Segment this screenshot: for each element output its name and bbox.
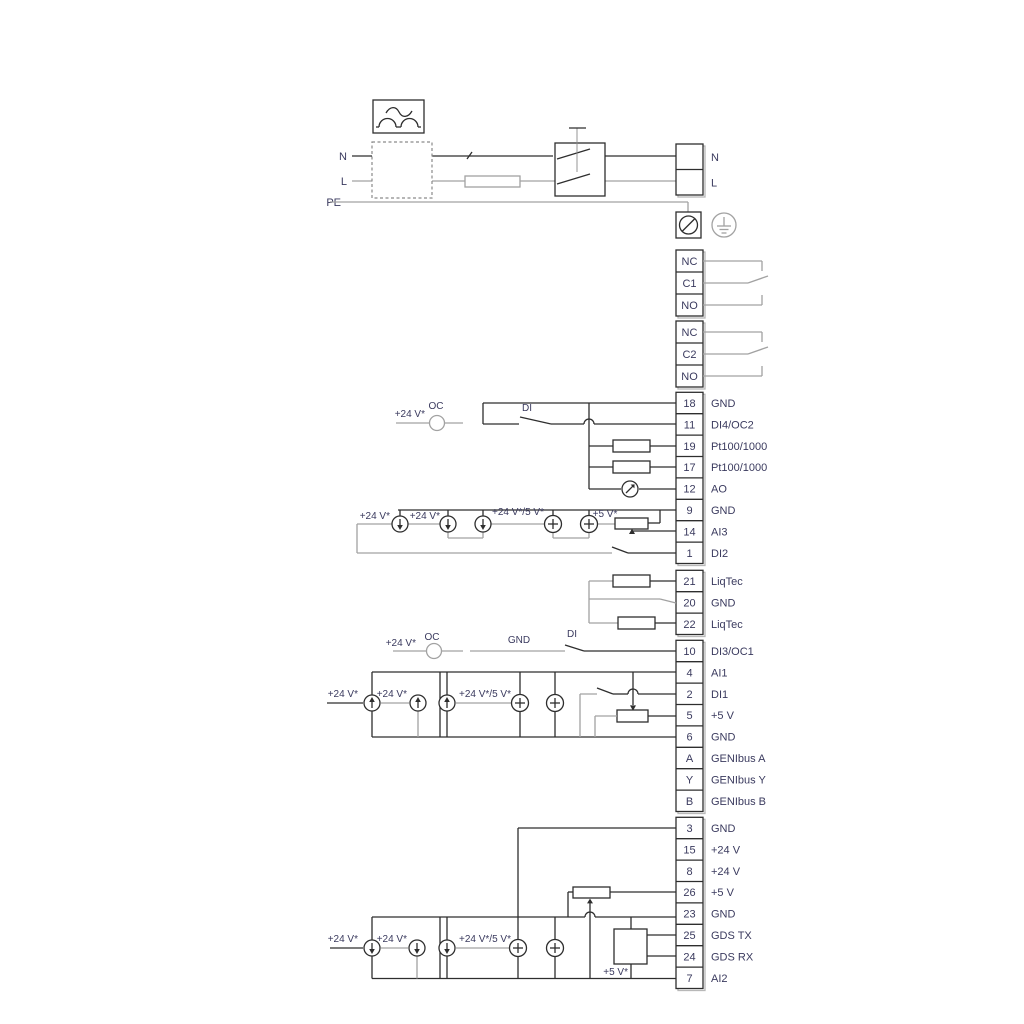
terminal-number: 10 (683, 646, 695, 658)
voltage-label: +24 V* (377, 689, 407, 700)
terminal-number: 9 (686, 505, 692, 517)
voltage-label: +24 V* (410, 511, 440, 522)
terminal-label: AI3 (711, 526, 728, 538)
oc-label: OC (429, 401, 444, 412)
terminal-label: DI3/OC1 (711, 646, 754, 658)
voltage-label: +24 V* (386, 638, 416, 649)
terminal-label: GND (711, 505, 736, 517)
terminal-number: 18 (683, 398, 695, 410)
terminal-label: Pt100/1000 (711, 441, 767, 453)
wiper-arrowhead (587, 899, 593, 904)
terminal-number: 4 (686, 667, 692, 679)
resistor-symbol (613, 575, 650, 587)
label-pe: PE (326, 197, 341, 209)
terminal-number: B (686, 796, 693, 808)
relay-terminal-label: NO (681, 371, 698, 383)
relay-terminal-label: NC (682, 256, 698, 268)
relay-terminal-label: NC (682, 327, 698, 339)
terminal-label: LiqTec (711, 619, 743, 631)
terminal-label: GDS TX (711, 930, 752, 942)
terminal-number: 14 (683, 526, 695, 538)
terminal-number: 15 (683, 844, 695, 856)
terminal-label: GND (711, 823, 736, 835)
terminal-number: 17 (683, 462, 695, 474)
terminal-label: GENIbus A (711, 753, 766, 765)
gds-sensor-box (614, 929, 647, 964)
terminal-label: DI4/OC2 (711, 419, 754, 431)
gnd-label: GND (508, 635, 530, 646)
voltage-label: +24 V* (328, 934, 358, 945)
terminal-label: LiqTec (711, 576, 743, 588)
terminal-label: GND (711, 398, 736, 410)
terminal-number: 20 (683, 597, 695, 609)
wiring-diagram-page: NLPENLNCC1NONCC2NO18GND11DI4/OC219Pt100/… (0, 0, 1024, 1024)
terminal-label: GENIbus B (711, 796, 766, 808)
terminal-number: 1 (686, 548, 692, 560)
terminal-label: GENIbus Y (711, 774, 766, 786)
terminal-label: GND (711, 909, 736, 921)
label-l-in: L (341, 176, 347, 188)
terminal-label: +5 V (711, 887, 735, 899)
switch-arm (565, 645, 584, 651)
voltage-label: +24 V* (360, 511, 390, 522)
di-label: DI (567, 629, 577, 640)
terminal-label: DI2 (711, 548, 728, 560)
voltage-label: +24 V*/5 V* (459, 934, 511, 945)
terminal-label: AO (711, 484, 727, 496)
terminal-number: 26 (683, 887, 695, 899)
terminal-number: 23 (683, 909, 695, 921)
switch-arm (748, 276, 768, 283)
fuse-symbol (465, 176, 520, 187)
resistor-symbol (613, 461, 650, 473)
dashed-component-box (372, 142, 432, 198)
terminal-number: 11 (684, 419, 695, 431)
switch-arm (612, 547, 628, 553)
terminal-label: GND (711, 732, 736, 744)
terminal-label: +5 V (711, 710, 735, 722)
open-collector-icon (430, 416, 445, 431)
terminal-number: A (686, 753, 694, 765)
voltage-label: +5 V* (593, 509, 618, 520)
potentiometer-symbol (615, 518, 648, 529)
relay-terminal-label: C1 (682, 278, 696, 290)
terminal-label: AI2 (711, 973, 728, 985)
terminal-number: 6 (686, 732, 692, 744)
terminal-number: 19 (683, 441, 695, 453)
wiring-diagram: NLPENLNCC1NONCC2NO18GND11DI4/OC219Pt100/… (0, 0, 1024, 1024)
mains-supply-box (373, 100, 424, 133)
voltage-label: +24 V*/5 V* (492, 507, 544, 518)
terminal-number: 22 (683, 619, 695, 631)
resistor-symbol (618, 617, 655, 629)
terminal-number: 3 (686, 823, 692, 835)
voltage-label: +24 V* (328, 689, 358, 700)
terminal-number: 8 (686, 866, 692, 878)
terminal-number: 25 (683, 930, 695, 942)
terminal-label: +24 V (711, 866, 741, 878)
potentiometer-symbol (617, 710, 648, 722)
terminal-number: 21 (683, 576, 695, 588)
terminal-number: 2 (686, 689, 692, 701)
voltage-label: +24 V*/5 V* (459, 689, 511, 700)
terminal-number: Y (686, 774, 694, 786)
switch-arm (748, 347, 768, 354)
mains-out-label: L (711, 177, 717, 189)
mains-out-label: N (711, 152, 719, 164)
di-label: DI (522, 403, 532, 414)
resistor-symbol (613, 440, 650, 452)
terminal-label: Pt100/1000 (711, 462, 767, 474)
terminal-label: +24 V (711, 844, 741, 856)
terminal-label: AI1 (711, 667, 728, 679)
relay-terminal-label: NO (681, 300, 698, 312)
oc-label: OC (425, 632, 440, 643)
switch-arm (520, 417, 551, 424)
potentiometer-symbol (573, 887, 610, 898)
double-pole-switch-box (555, 143, 605, 196)
terminal-number: 12 (683, 484, 695, 496)
terminal-number: 24 (683, 951, 695, 963)
voltage-label: +5 V* (603, 967, 628, 978)
label-n-in: N (339, 151, 347, 163)
open-collector-icon (427, 644, 442, 659)
voltage-label: +24 V* (377, 934, 407, 945)
terminal-number: 7 (686, 973, 692, 985)
terminal-number: 5 (686, 710, 692, 722)
terminal-label: DI1 (711, 689, 728, 701)
wire (660, 599, 676, 603)
switch-arm (597, 688, 613, 694)
terminal-label: GND (711, 597, 736, 609)
voltage-label: +24 V* (395, 409, 425, 420)
relay-terminal-label: C2 (682, 349, 696, 361)
terminal-label: GDS RX (711, 951, 754, 963)
